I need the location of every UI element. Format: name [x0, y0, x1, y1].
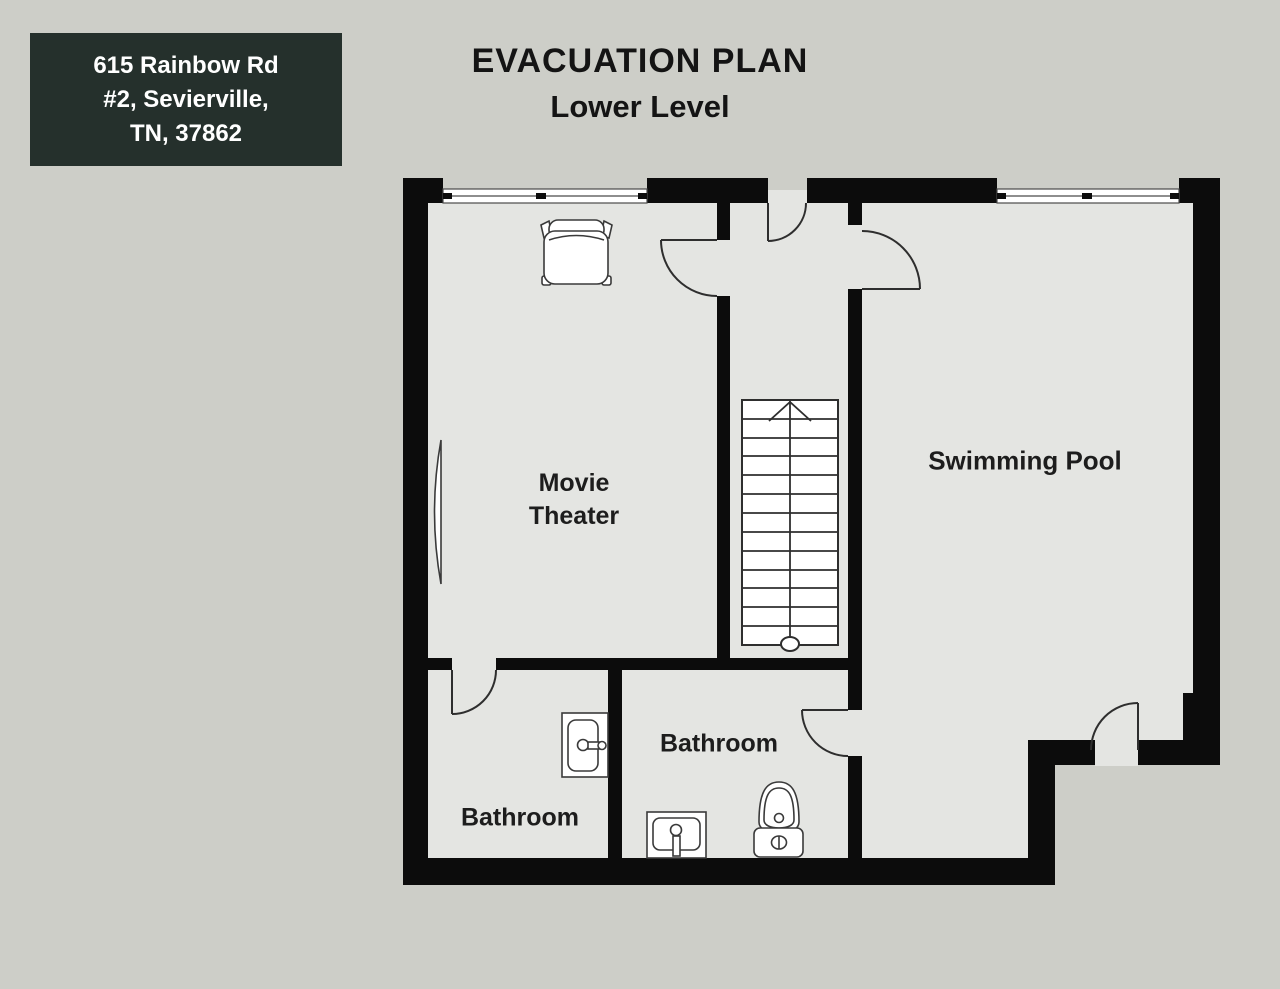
window-swimming-pool: [997, 189, 1179, 203]
address-box: 615 Rainbow Rd #2, Sevierville, TN, 3786…: [30, 33, 342, 166]
entry-threshold: [768, 190, 807, 204]
sofa-icon: [541, 220, 612, 285]
pool-door-threshold: [1095, 740, 1138, 766]
evacuation-plan-page: 615 Rainbow Rd #2, Sevierville, TN, 3786…: [0, 0, 1280, 989]
staircase-icon: [742, 400, 838, 651]
room-label-bathroom-middle: Bathroom: [660, 728, 778, 761]
room-label-bathroom-left: Bathroom: [461, 802, 579, 835]
page-title: EVACUATION PLAN: [472, 42, 809, 81]
room-label-movie-theater: Movie Theater: [529, 467, 619, 533]
address-line-3: TN, 37862: [130, 117, 242, 151]
stairs-start-marker: [781, 637, 799, 651]
sink-left-bathroom-icon: [562, 713, 608, 777]
window-movie-theater: [443, 189, 647, 203]
page-subtitle: Lower Level: [472, 89, 809, 125]
sink-middle-bathroom-icon: [647, 812, 706, 858]
room-label-swimming-pool: Swimming Pool: [928, 445, 1122, 478]
address-line-1: 615 Rainbow Rd: [93, 49, 278, 83]
address-line-2: #2, Sevierville,: [103, 83, 268, 117]
title-block: EVACUATION PLAN Lower Level: [472, 42, 809, 125]
